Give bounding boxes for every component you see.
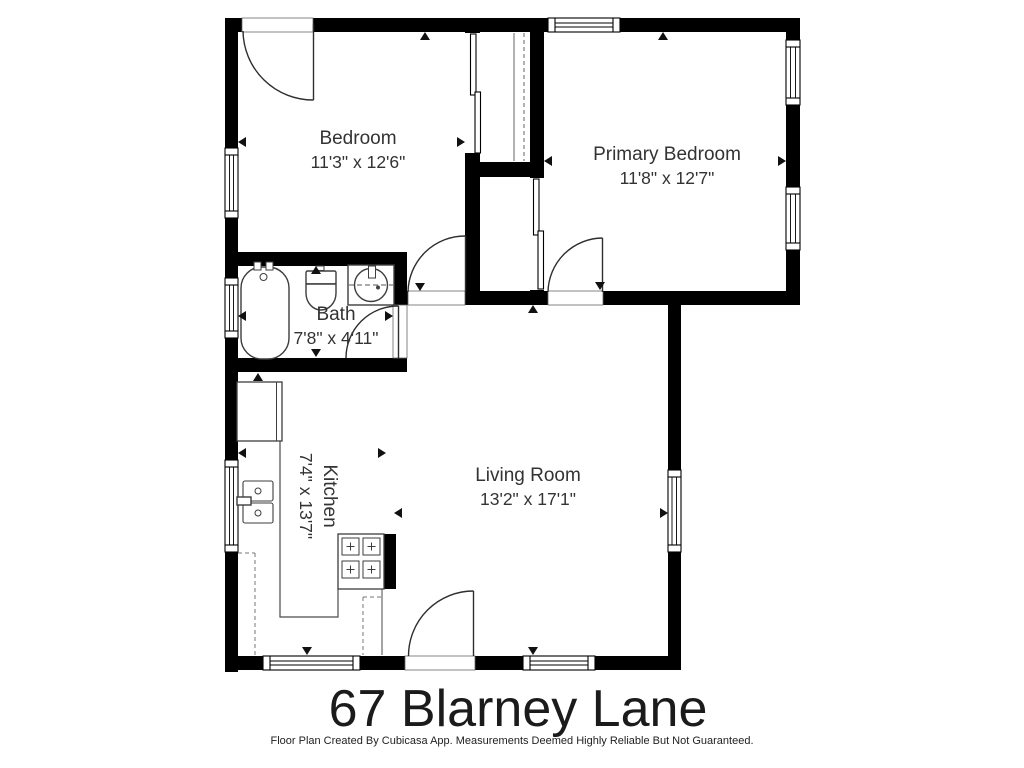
room-name: Kitchen: [317, 453, 341, 539]
room-label-primary-bedroom: Primary Bedroom 11'8" x 12'7": [593, 143, 741, 189]
room-name: Bath: [294, 303, 379, 327]
bathroom-sink-icon: [348, 265, 394, 305]
room-label-living-room: Living Room 13'2" x 17'1": [475, 464, 581, 510]
door-icon: [409, 591, 474, 656]
floor-plan-page: Bedroom 11'3" x 12'6" Primary Bedroom 11…: [0, 0, 1024, 768]
window-icon: [225, 278, 238, 338]
address-title: 67 Blarney Lane: [329, 682, 708, 737]
room-label-kitchen: Kitchen 7'4" x 13'7": [295, 453, 341, 539]
door-icon: [243, 24, 314, 100]
window-icon: [225, 148, 238, 218]
window-icon: [263, 656, 360, 670]
room-dimensions: 13'2" x 17'1": [475, 488, 581, 510]
room-label-bath: Bath 7'8" x 4'11": [294, 303, 379, 349]
room-dimensions: 11'8" x 12'7": [593, 167, 741, 189]
window-icon: [786, 40, 800, 105]
room-dimensions: 7'8" x 4'11": [294, 327, 379, 349]
window-icon: [668, 470, 681, 552]
door-icon: [548, 238, 603, 292]
stove-icon: [338, 534, 384, 589]
floor-plan-drawing: [0, 0, 1024, 768]
room-name: Bedroom: [311, 127, 406, 151]
disclaimer-text: Floor Plan Created By Cubicasa App. Meas…: [270, 735, 753, 747]
room-dimensions: 11'3" x 12'6": [311, 151, 406, 173]
closet-rod-shelf: [514, 33, 524, 161]
window-icon: [523, 656, 595, 670]
window-icon: [786, 187, 800, 250]
window-icon: [225, 460, 238, 552]
room-label-bedroom: Bedroom 11'3" x 12'6": [311, 127, 406, 173]
kitchen-sink-icon: [237, 481, 273, 523]
room-name: Primary Bedroom: [593, 143, 741, 167]
refrigerator-icon: [237, 382, 282, 441]
bathtub-icon: [241, 262, 289, 359]
window-icon: [548, 18, 620, 32]
room-dimensions: 7'4" x 13'7": [295, 453, 317, 539]
room-name: Living Room: [475, 464, 581, 488]
